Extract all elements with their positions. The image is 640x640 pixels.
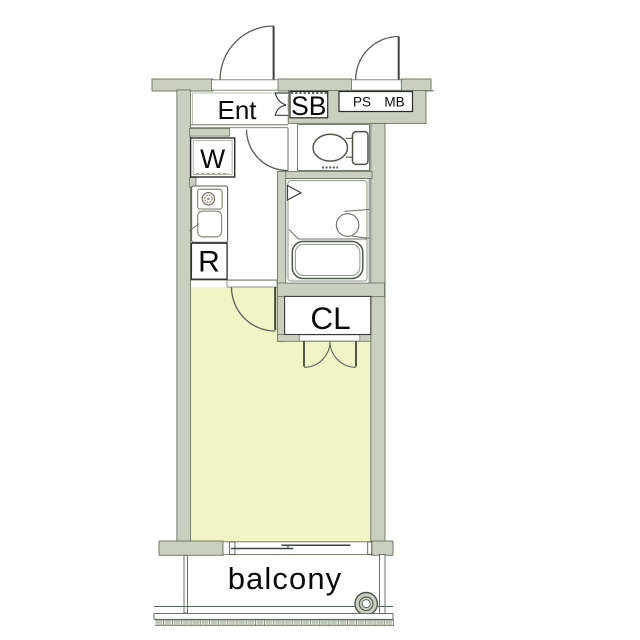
svg-text:R: R (198, 246, 220, 279)
svg-text:Ent: Ent (217, 95, 257, 125)
svg-text:PS: PS (353, 95, 371, 110)
svg-text:CL: CL (310, 300, 350, 336)
svg-text:W: W (200, 144, 225, 174)
svg-text:balcony: balcony (228, 561, 343, 596)
svg-text:MB: MB (384, 95, 404, 110)
svg-text:SB: SB (291, 91, 326, 121)
